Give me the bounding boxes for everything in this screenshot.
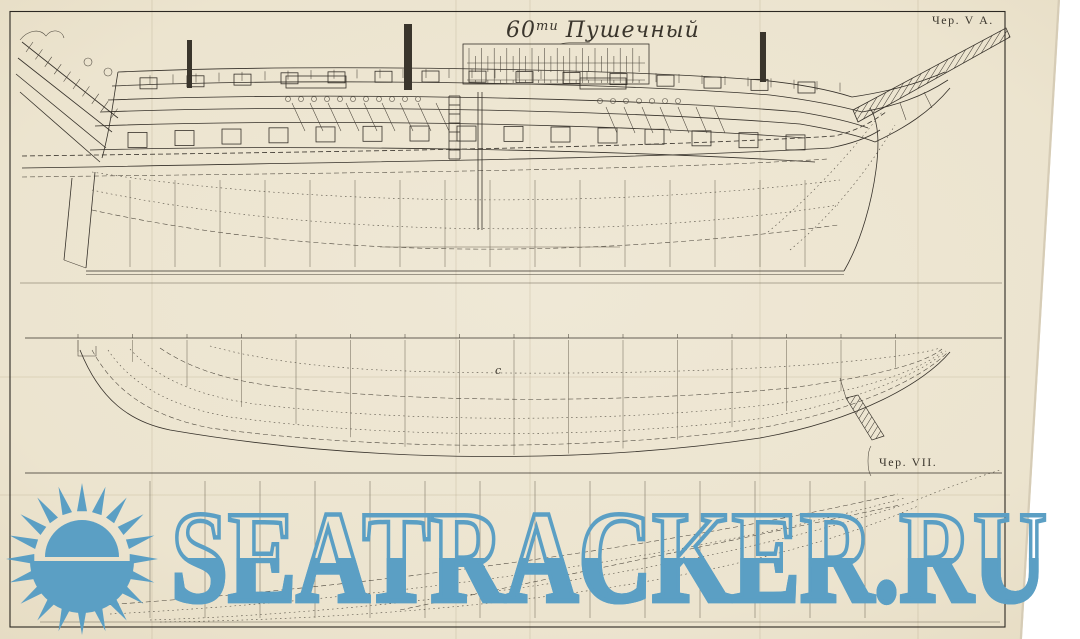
plate-title: 60тиПушечный xyxy=(506,18,700,43)
screenshot-root: 60тиПушечный Чер. V А. Чер. VII. c SEATR… xyxy=(0,0,1080,639)
sheet-number-label: Чер. V А. xyxy=(932,13,994,27)
fore-mast-stub xyxy=(760,32,766,82)
sheet-number-label-lower: Чер. VII. xyxy=(879,455,937,469)
main-mast-stub xyxy=(404,24,412,90)
station-letter: c xyxy=(495,364,501,377)
scanned-ship-plan: 60тиПушечный Чер. V А. Чер. VII. c SEATR… xyxy=(0,0,1080,639)
mizzen-mast-stub xyxy=(187,40,192,88)
